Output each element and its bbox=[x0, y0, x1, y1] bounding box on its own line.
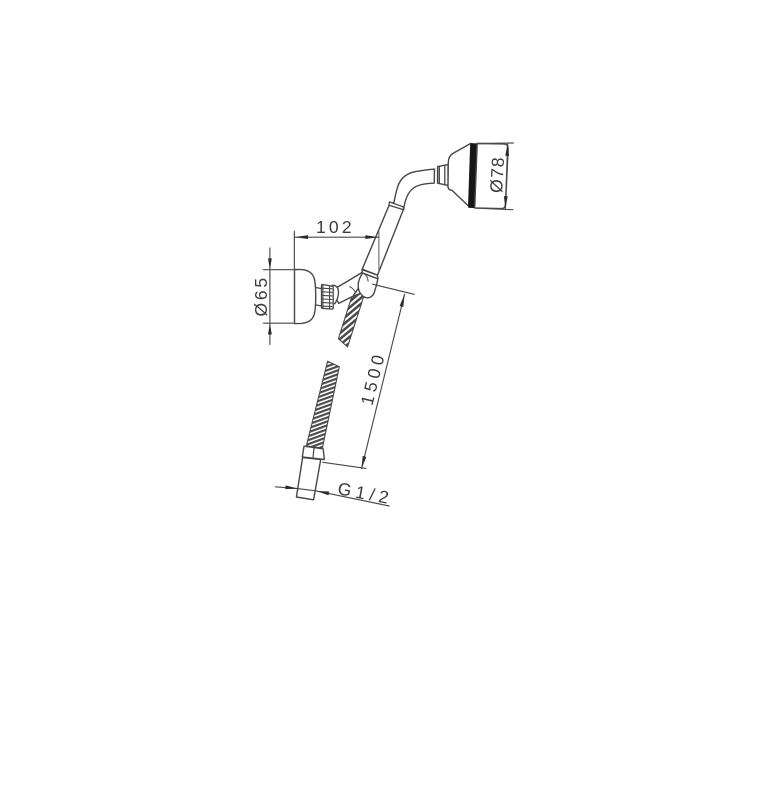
svg-text:G1/2: G1/2 bbox=[336, 478, 395, 508]
svg-text:102: 102 bbox=[316, 217, 355, 237]
svg-text:Ø65: Ø65 bbox=[251, 275, 271, 316]
svg-text:Ø78: Ø78 bbox=[486, 156, 508, 194]
